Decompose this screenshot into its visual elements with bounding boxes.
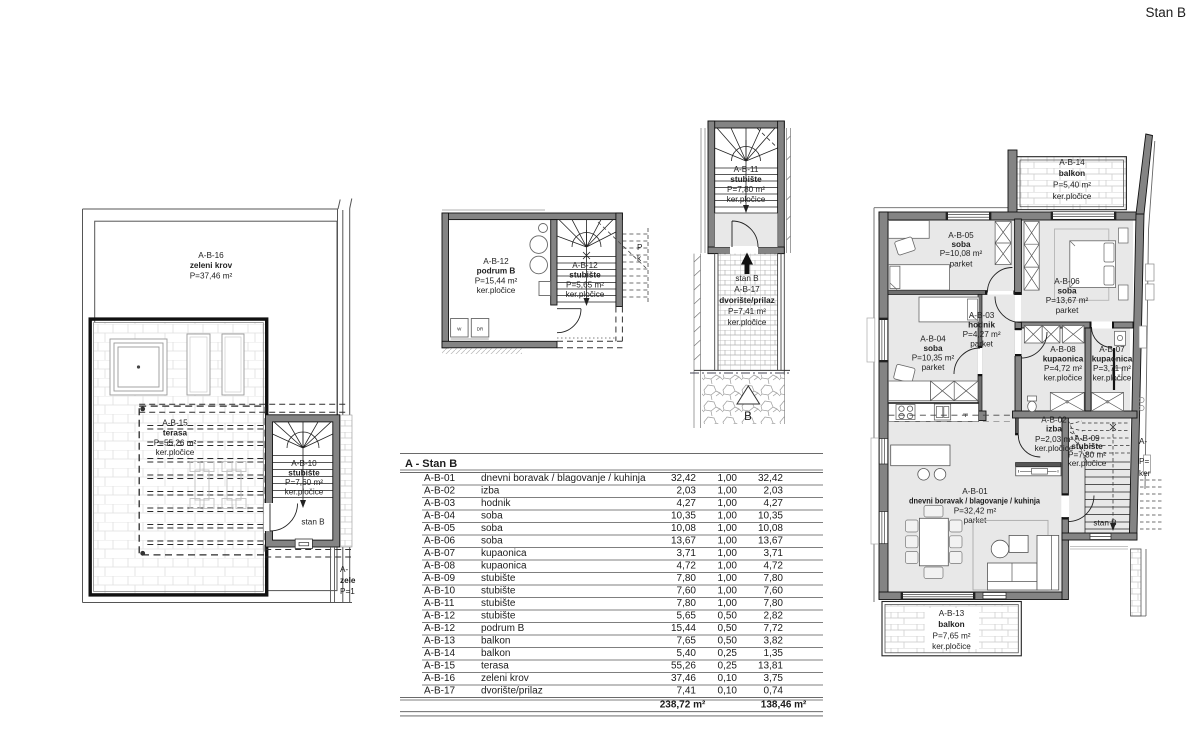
svg-text:A-: A- <box>340 565 348 574</box>
svg-text:A-B-08: A-B-08 <box>424 560 456 571</box>
svg-text:P=3,71 m²: P=3,71 m² <box>1093 364 1131 373</box>
svg-text:soba: soba <box>481 510 503 521</box>
svg-text:A-B-01: A-B-01 <box>962 487 988 496</box>
svg-text:32,42: 32,42 <box>671 473 696 484</box>
svg-text:10,35: 10,35 <box>671 510 696 521</box>
svg-text:ker.pločice: ker.pločice <box>477 286 516 295</box>
svg-text:A-B-08: A-B-08 <box>1050 345 1076 354</box>
svg-text:zeleni krov: zeleni krov <box>481 673 529 684</box>
svg-text:0,50: 0,50 <box>718 610 738 621</box>
svg-text:P=7,65 m²: P=7,65 m² <box>933 632 971 641</box>
svg-text:parket: parket <box>922 363 945 372</box>
svg-text:A-B-17: A-B-17 <box>424 685 456 696</box>
svg-text:13,81: 13,81 <box>758 660 783 671</box>
svg-text:1,00: 1,00 <box>718 485 738 496</box>
svg-text:2,82: 2,82 <box>764 610 784 621</box>
svg-text:A-B-13: A-B-13 <box>939 609 965 618</box>
svg-text:stubište: stubište <box>730 175 762 184</box>
svg-text:soba: soba <box>1057 287 1077 296</box>
svg-text:3,71: 3,71 <box>677 548 697 559</box>
svg-text:stubište: stubište <box>481 598 516 609</box>
svg-text:7,80: 7,80 <box>764 598 784 609</box>
svg-text:A-B-09: A-B-09 <box>424 573 456 584</box>
svg-text:138,46 m²: 138,46 m² <box>761 699 807 710</box>
svg-text:kupaonica: kupaonica <box>1092 355 1133 364</box>
svg-text:A-B-14: A-B-14 <box>424 648 456 659</box>
svg-text:izba: izba <box>481 485 500 496</box>
svg-text:B: B <box>744 411 752 423</box>
svg-text:4,72: 4,72 <box>764 560 784 571</box>
svg-text:balkon: balkon <box>481 648 510 659</box>
svg-text:P=15,44 m²: P=15,44 m² <box>475 277 518 286</box>
svg-text:P=2,03 m²: P=2,03 m² <box>1035 435 1073 444</box>
svg-text:A-B-12: A-B-12 <box>424 623 456 634</box>
svg-text:P=7,80 m²: P=7,80 m² <box>727 185 765 194</box>
svg-text:zeleni krov: zeleni krov <box>190 261 233 270</box>
svg-text:A-B-04: A-B-04 <box>920 335 946 344</box>
svg-text:0,10: 0,10 <box>718 673 738 684</box>
svg-text:A-B-02: A-B-02 <box>1041 416 1067 425</box>
svg-text:ker.pločice: ker.pločice <box>1044 374 1083 383</box>
svg-text:13,67: 13,67 <box>758 535 783 546</box>
svg-text:4,27: 4,27 <box>677 498 697 509</box>
svg-text:dvorište/prilaz: dvorište/prilaz <box>719 296 775 305</box>
svg-text:2,03: 2,03 <box>764 485 784 496</box>
svg-text:P=7,41 m²: P=7,41 m² <box>728 307 766 316</box>
svg-text:terasa: terasa <box>163 429 188 438</box>
svg-text:1,00: 1,00 <box>718 548 738 559</box>
svg-text:P=10,08 m²: P=10,08 m² <box>940 249 983 258</box>
svg-text:A-B-13: A-B-13 <box>424 635 456 646</box>
svg-text:A-B-11: A-B-11 <box>734 165 759 174</box>
svg-text:A-B-15: A-B-15 <box>424 660 456 671</box>
svg-text:7,80: 7,80 <box>677 573 697 584</box>
svg-text:A-B-10: A-B-10 <box>291 459 317 468</box>
svg-text:ker.pločice: ker.pločice <box>728 318 767 327</box>
svg-text:stan B: stan B <box>301 518 325 527</box>
svg-text:P=7,60 m²: P=7,60 m² <box>285 478 323 487</box>
svg-text:izba: izba <box>1046 425 1062 434</box>
svg-text:3,71: 3,71 <box>764 548 784 559</box>
svg-text:kupaonica: kupaonica <box>1043 355 1084 364</box>
svg-text:ker.pločice: ker.pločice <box>1053 192 1092 201</box>
svg-text:A-B-04: A-B-04 <box>424 510 456 521</box>
svg-text:0,25: 0,25 <box>718 660 738 671</box>
svg-text:stan B: stan B <box>735 274 759 283</box>
svg-text:A-B-02: A-B-02 <box>424 485 456 496</box>
svg-text:parket: parket <box>970 340 993 349</box>
svg-text:A-B-15: A-B-15 <box>162 419 188 428</box>
svg-text:A-B-14: A-B-14 <box>1059 158 1085 167</box>
svg-text:A-B-12: A-B-12 <box>424 610 456 621</box>
svg-text:terasa: terasa <box>481 660 509 671</box>
svg-text:zele: zele <box>340 576 356 585</box>
svg-text:7,80: 7,80 <box>764 573 784 584</box>
svg-text:ker.pločice: ker.pločice <box>727 195 766 204</box>
svg-text:kupaonica: kupaonica <box>481 560 527 571</box>
svg-text:32,42: 32,42 <box>758 473 783 484</box>
svg-text:4,27: 4,27 <box>764 498 784 509</box>
svg-text:A-B-17: A-B-17 <box>734 285 760 294</box>
svg-text:37,46: 37,46 <box>671 673 696 684</box>
svg-text:A-B-07: A-B-07 <box>1099 345 1125 354</box>
svg-text:0,50: 0,50 <box>718 623 738 634</box>
svg-text:10,08: 10,08 <box>671 523 696 534</box>
svg-text:2,03: 2,03 <box>677 485 697 496</box>
svg-text:P=10,35 m²: P=10,35 m² <box>912 354 955 363</box>
svg-text:1,00: 1,00 <box>718 560 738 571</box>
svg-text:4,72: 4,72 <box>677 560 697 571</box>
svg-text:kupaonica: kupaonica <box>481 548 527 559</box>
svg-text:P=5,65 m²: P=5,65 m² <box>566 281 604 290</box>
svg-text:5,40: 5,40 <box>677 648 697 659</box>
svg-text:stan B: stan B <box>1093 519 1117 528</box>
svg-text:dnevni boravak / blagovanje /: dnevni boravak / blagovanje / kuhinja <box>481 473 646 484</box>
svg-text:55,26: 55,26 <box>671 660 696 671</box>
svg-text:P=32,42 m²: P=32,42 m² <box>954 507 997 516</box>
svg-text:A-B-01: A-B-01 <box>424 473 456 484</box>
svg-text:A-B-16: A-B-16 <box>198 251 224 260</box>
svg-text:soba: soba <box>481 523 503 534</box>
svg-text:ker: ker <box>1139 469 1151 478</box>
svg-text:1,00: 1,00 <box>718 510 738 521</box>
svg-text:10,08: 10,08 <box>758 523 783 534</box>
svg-text:ker.pločice: ker.pločice <box>932 642 971 651</box>
svg-text:7,72: 7,72 <box>764 623 784 634</box>
svg-text:P=13,67 m²: P=13,67 m² <box>1046 296 1089 305</box>
svg-text:1,00: 1,00 <box>718 498 738 509</box>
svg-text:P=55,26 m²: P=55,26 m² <box>154 439 197 448</box>
svg-text:P=: P= <box>1139 457 1149 466</box>
svg-text:hodnik: hodnik <box>481 498 511 509</box>
svg-text:10,35: 10,35 <box>758 510 783 521</box>
svg-text:A-B-06: A-B-06 <box>1054 277 1080 286</box>
svg-text:P=1: P=1 <box>340 587 355 596</box>
svg-text:1,00: 1,00 <box>718 535 738 546</box>
svg-text:stubište: stubište <box>481 573 516 584</box>
svg-text:dvorište/prilaz: dvorište/prilaz <box>481 685 543 696</box>
svg-text:parket: parket <box>1056 306 1079 315</box>
svg-text:dnevni boravak / blagovanje /: dnevni boravak / blagovanje / kuhinja <box>909 497 1040 506</box>
svg-text:13,67: 13,67 <box>671 535 696 546</box>
svg-text:1,00: 1,00 <box>718 473 738 484</box>
svg-text:0,25: 0,25 <box>718 648 738 659</box>
svg-text:balkon: balkon <box>481 635 510 646</box>
svg-text:A-B-03: A-B-03 <box>424 498 456 509</box>
svg-text:7,60: 7,60 <box>764 585 784 596</box>
svg-text:W: W <box>457 327 462 332</box>
svg-text:A-B-05: A-B-05 <box>424 523 456 534</box>
svg-text:7,41: 7,41 <box>677 685 697 696</box>
svg-text:stubište: stubište <box>569 271 601 280</box>
svg-text:ker.pločice: ker.pločice <box>566 290 605 299</box>
svg-text:A-B-10: A-B-10 <box>424 585 456 596</box>
svg-text:A-B-07: A-B-07 <box>424 548 456 559</box>
svg-text:A-: A- <box>1139 437 1147 446</box>
svg-text:5,65: 5,65 <box>677 610 697 621</box>
svg-text:A - Stan B: A - Stan B <box>405 458 457 470</box>
svg-text:P=4,72 m²: P=4,72 m² <box>1044 364 1082 373</box>
svg-text:ker.pločice: ker.pločice <box>285 488 324 497</box>
svg-text:hodnik: hodnik <box>968 321 995 330</box>
svg-text:Stan B: Stan B <box>1145 5 1186 20</box>
svg-text:238,72 m²: 238,72 m² <box>660 699 706 710</box>
svg-text:ker.pločice: ker.pločice <box>1093 374 1132 383</box>
svg-text:soba: soba <box>951 240 971 249</box>
svg-text:7,80: 7,80 <box>677 598 697 609</box>
svg-text:P=5,40 m²: P=5,40 m² <box>1053 181 1091 190</box>
svg-text:podrum B: podrum B <box>481 623 525 634</box>
svg-text:0,74: 0,74 <box>764 685 784 696</box>
svg-text:podrum B: podrum B <box>477 267 516 276</box>
svg-text:stubište: stubište <box>288 469 320 478</box>
svg-text:A-B-12: A-B-12 <box>572 261 598 270</box>
svg-text:0,10: 0,10 <box>718 685 738 696</box>
svg-text:ker.pločice: ker.pločice <box>156 448 195 457</box>
svg-text:P: P <box>637 243 643 252</box>
svg-text:3,82: 3,82 <box>764 635 784 646</box>
svg-text:1,35: 1,35 <box>764 648 784 659</box>
svg-text:P=37,46 m²: P=37,46 m² <box>190 272 233 281</box>
svg-text:A-B-11: A-B-11 <box>424 598 455 609</box>
svg-text:soba: soba <box>923 344 943 353</box>
svg-text:parket: parket <box>950 260 973 269</box>
svg-text:DR: DR <box>477 327 484 332</box>
svg-text:A-B-03: A-B-03 <box>969 311 995 320</box>
svg-text:7,60: 7,60 <box>677 585 697 596</box>
svg-text:7,65: 7,65 <box>677 635 697 646</box>
svg-text:P=4,27 m²: P=4,27 m² <box>963 330 1001 339</box>
svg-text:soba: soba <box>481 535 503 546</box>
svg-text:0,50: 0,50 <box>718 635 738 646</box>
svg-text:A-B-12: A-B-12 <box>483 257 509 266</box>
svg-text:1,00: 1,00 <box>718 585 738 596</box>
svg-text:1,00: 1,00 <box>718 523 738 534</box>
svg-text:stubište: stubište <box>481 585 516 596</box>
svg-text:1,00: 1,00 <box>718 573 738 584</box>
svg-text:3,75: 3,75 <box>764 673 784 684</box>
svg-text:1,00: 1,00 <box>718 598 738 609</box>
svg-text:A-B-06: A-B-06 <box>424 535 456 546</box>
svg-text:A-B-16: A-B-16 <box>424 673 456 684</box>
svg-text:ker.pločice: ker.pločice <box>1068 459 1107 468</box>
svg-text:15,44: 15,44 <box>671 623 696 634</box>
svg-text:balkon: balkon <box>938 620 964 629</box>
svg-text:A-B-05: A-B-05 <box>948 231 974 240</box>
svg-text:balkon: balkon <box>1059 169 1085 178</box>
svg-text:stubište: stubište <box>481 610 516 621</box>
